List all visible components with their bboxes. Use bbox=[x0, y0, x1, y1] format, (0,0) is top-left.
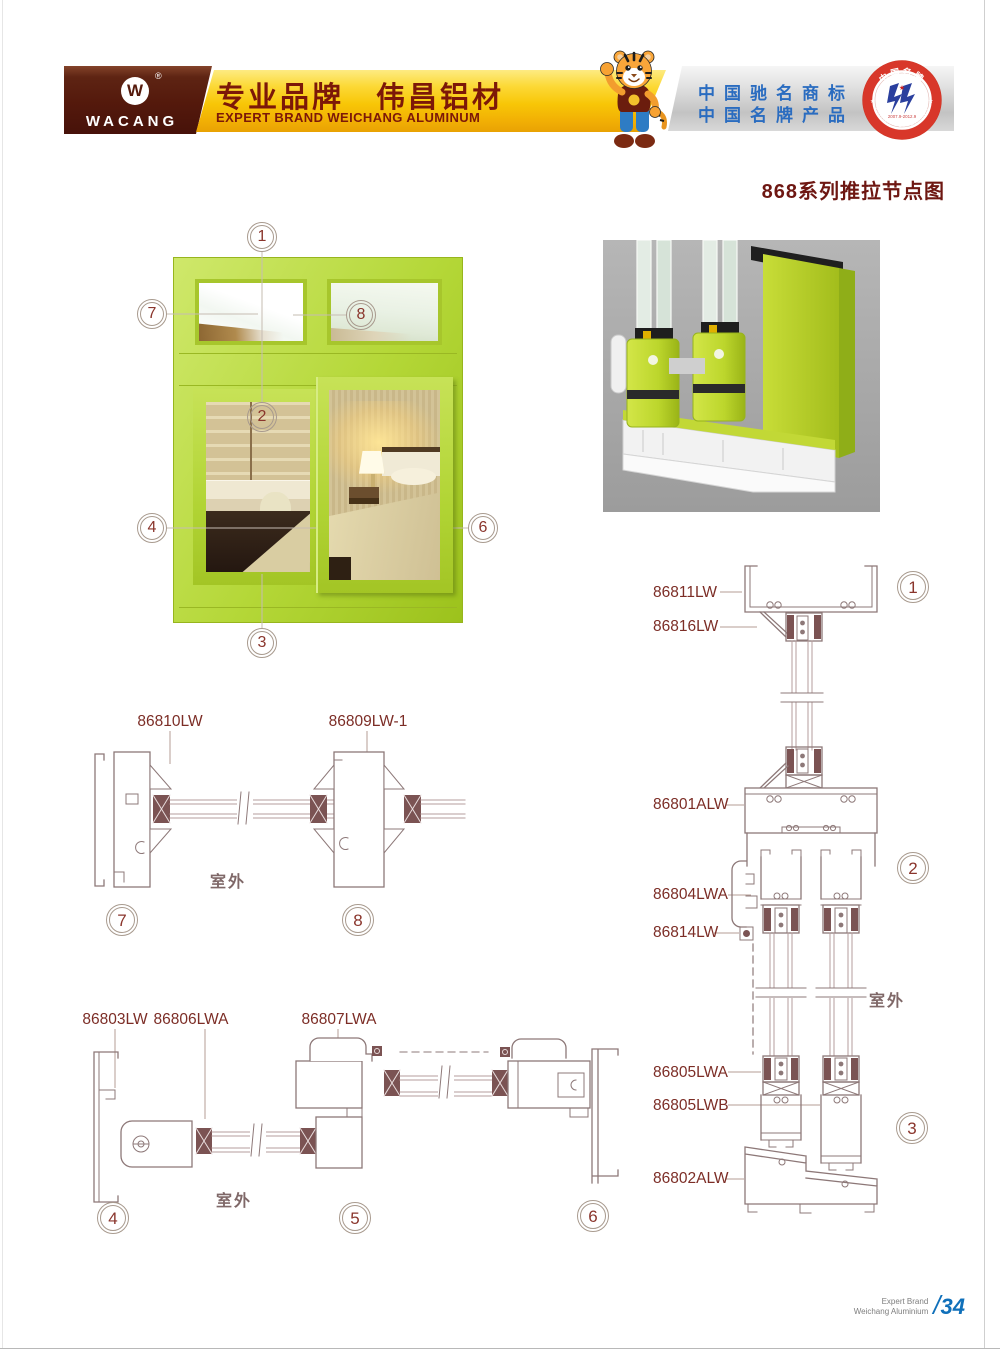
profile-3d-render bbox=[603, 240, 880, 512]
section-circle-2: 2 bbox=[897, 852, 929, 884]
callout-number: 1 bbox=[258, 229, 267, 245]
page-border-bottom bbox=[0, 1348, 1000, 1349]
section-number: 5 bbox=[350, 1210, 359, 1227]
outdoor-label-midleft: 室外 bbox=[210, 868, 246, 892]
callout-number: 7 bbox=[148, 306, 157, 322]
page-number: 34 bbox=[941, 1294, 965, 1320]
transom-glass-left bbox=[195, 279, 307, 345]
glass-reflection bbox=[331, 324, 438, 341]
banner-subtitle-en: EXPERT BRAND WEICHANG ALUMINUM bbox=[216, 110, 480, 125]
part-label-86805LWB: 86805LWB bbox=[653, 1097, 729, 1115]
bottomleft-section-drawing bbox=[94, 1038, 618, 1202]
china-top-brand-seal: ★ ★ ★ 中国名牌 CHINA TOP BRAND 2007.9-2012.9 bbox=[862, 60, 942, 140]
footer-brand-text: Expert Brand Weichang Aluminium bbox=[854, 1297, 929, 1317]
part-label-86810LW: 86810LW bbox=[125, 713, 215, 731]
section-circle-7: 7 bbox=[106, 904, 138, 936]
midleft-section-drawing bbox=[95, 752, 465, 887]
page-border-right bbox=[984, 0, 985, 1349]
footer-line-2: Weichang Aluminium bbox=[854, 1307, 929, 1317]
section-number: 1 bbox=[908, 579, 917, 596]
section-circle-3: 3 bbox=[896, 1112, 928, 1144]
section-circle-5: 5 bbox=[339, 1202, 371, 1234]
callout-number: 2 bbox=[258, 409, 267, 425]
page-footer: Expert Brand Weichang Aluminium / 34 bbox=[640, 1291, 965, 1322]
section-circle-1: 1 bbox=[897, 571, 929, 603]
section-number: 4 bbox=[108, 1210, 117, 1227]
callout-number: 6 bbox=[479, 520, 488, 536]
part-label-86802ALW: 86802ALW bbox=[653, 1170, 729, 1188]
catalog-page: W ® WACANG 专业品牌 伟昌铝材 EXPERT BRAND WEICHA… bbox=[0, 0, 1000, 1366]
window-callout-6: 6 bbox=[468, 513, 498, 543]
window-illustration bbox=[173, 257, 463, 623]
section-number: 7 bbox=[117, 912, 126, 929]
frame-seam bbox=[179, 607, 457, 608]
window-callout-4: 4 bbox=[137, 513, 167, 543]
nightstand bbox=[349, 487, 379, 504]
callout-number: 8 bbox=[357, 307, 366, 323]
section-number: 6 bbox=[588, 1208, 597, 1225]
sliding-sash-right bbox=[316, 377, 453, 593]
callout-number: 4 bbox=[148, 520, 157, 536]
part-label-86811LW: 86811LW bbox=[653, 584, 717, 602]
room-photo-right bbox=[329, 390, 440, 580]
page-title: 868系列推拉节点图 bbox=[600, 175, 945, 204]
seal-star-right: ★ bbox=[928, 98, 933, 105]
outdoor-label-right: 室外 bbox=[869, 987, 905, 1011]
callout-number: 3 bbox=[258, 635, 267, 651]
outdoor-label-bottomleft: 室外 bbox=[216, 1187, 252, 1211]
brand-name: WACANG bbox=[64, 113, 200, 130]
part-label-86806LWA: 86806LWA bbox=[146, 1011, 236, 1029]
part-label-86801ALW: 86801ALW bbox=[653, 796, 729, 814]
section-number: 2 bbox=[908, 860, 917, 877]
part-label-86816LW: 86816LW bbox=[653, 618, 718, 636]
frame-seam bbox=[179, 353, 457, 354]
section-number: 3 bbox=[907, 1120, 916, 1137]
transom-glass-right bbox=[327, 279, 442, 345]
window-callout-2: 2 bbox=[247, 402, 277, 432]
seal-dates: 2007.9-2012.9 bbox=[888, 114, 917, 119]
right-section-drawing bbox=[732, 566, 877, 1213]
brand-logo-block: W ® WACANG bbox=[64, 66, 212, 134]
part-label-86805LWA: 86805LWA bbox=[653, 1064, 728, 1082]
footer-line-1: Expert Brand bbox=[854, 1297, 929, 1307]
seal-star-left: ★ bbox=[870, 98, 875, 105]
part-label-86809LW-1: 86809LW-1 bbox=[322, 713, 414, 731]
tiger-mascot-icon bbox=[594, 48, 674, 150]
footer-slash: / bbox=[933, 1290, 940, 1321]
part-label-86804LWA: 86804LWA bbox=[653, 886, 728, 904]
floor bbox=[329, 557, 351, 580]
part-label-86814LW: 86814LW bbox=[653, 924, 718, 942]
window-callout-7: 7 bbox=[137, 299, 167, 329]
section-circle-6: 6 bbox=[577, 1200, 609, 1232]
page-border-left bbox=[2, 0, 3, 1349]
section-circle-8: 8 bbox=[342, 904, 374, 936]
section-circle-4: 4 bbox=[97, 1202, 129, 1234]
window-callout-3: 3 bbox=[247, 628, 277, 658]
glass-reflection bbox=[199, 318, 303, 341]
logo-letter: W bbox=[127, 81, 143, 101]
part-label-86807LWA: 86807LWA bbox=[294, 1011, 384, 1029]
wacang-logo-icon: W bbox=[121, 77, 149, 105]
section-number: 8 bbox=[353, 912, 362, 929]
pillow bbox=[391, 468, 435, 485]
window-callout-8: 8 bbox=[346, 300, 376, 330]
desk bbox=[206, 480, 310, 499]
seal-star-center: ★ bbox=[899, 84, 905, 92]
lamp-shade bbox=[359, 451, 385, 474]
registered-trademark-symbol: ® bbox=[155, 71, 162, 81]
window-callout-1: 1 bbox=[247, 222, 277, 252]
